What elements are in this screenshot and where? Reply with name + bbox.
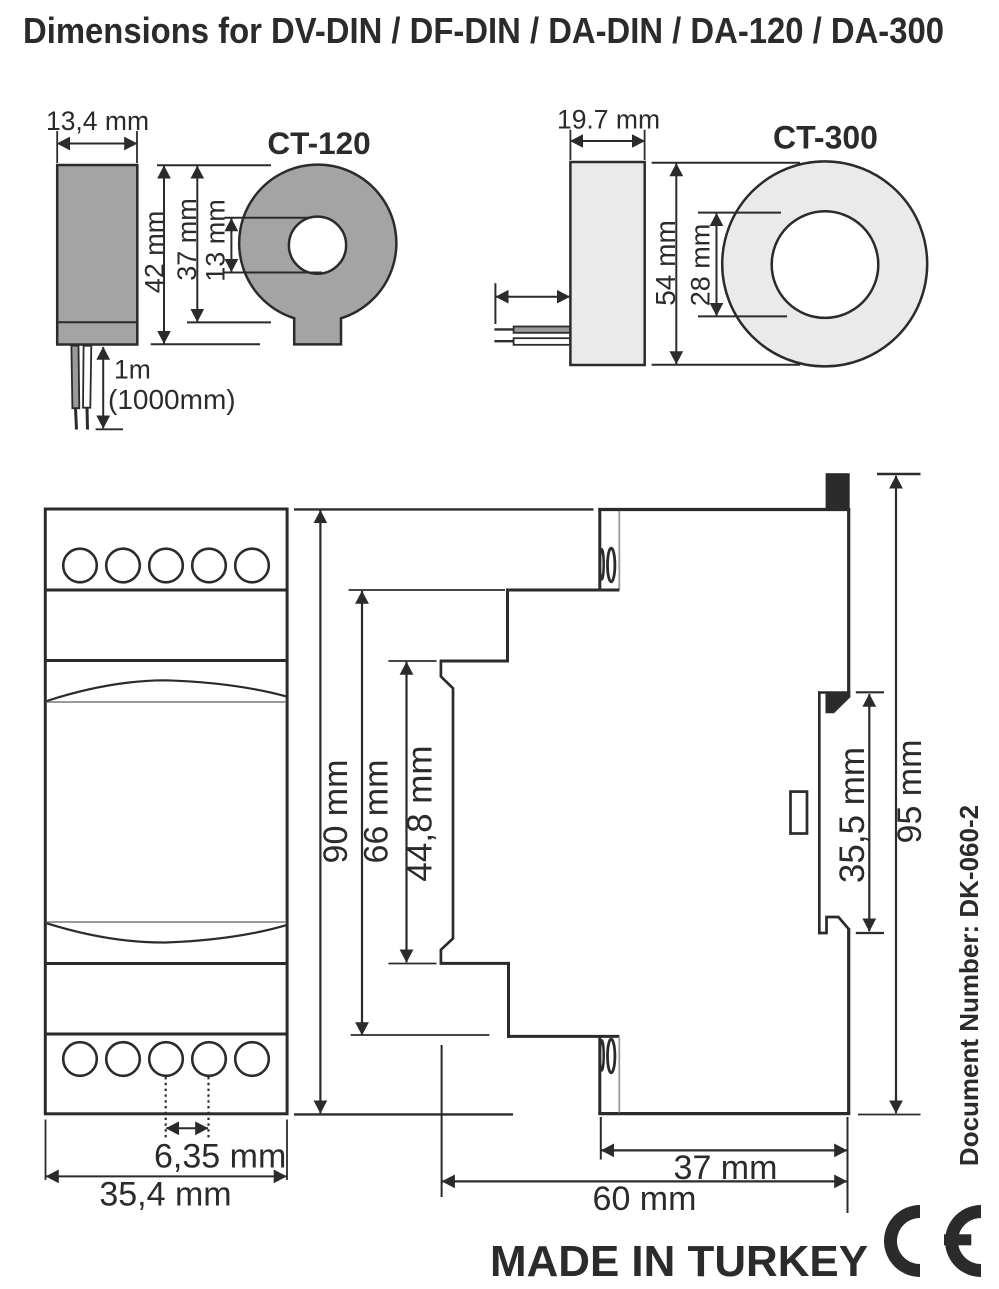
svg-text:60 mm: 60 mm bbox=[593, 1180, 697, 1218]
svg-text:95 mm: 95 mm bbox=[891, 740, 929, 844]
svg-text:1m: 1m bbox=[114, 355, 151, 385]
svg-text:66 mm: 66 mm bbox=[358, 760, 396, 864]
svg-text:13,4 mm: 13,4 mm bbox=[46, 106, 149, 136]
svg-text:54 mm: 54 mm bbox=[650, 220, 681, 306]
svg-text:Dimensions for DV-DIN / DF-DIN: Dimensions for DV-DIN / DF-DIN / DA-DIN … bbox=[23, 10, 944, 51]
svg-text:Document Number: DK-060-2: Document Number: DK-060-2 bbox=[954, 805, 984, 1166]
svg-text:(1000mm): (1000mm) bbox=[108, 384, 236, 415]
svg-text:13 mm: 13 mm bbox=[201, 199, 231, 282]
svg-text:37 mm: 37 mm bbox=[172, 198, 202, 281]
svg-text:28 mm: 28 mm bbox=[686, 224, 716, 307]
svg-text:CT-300: CT-300 bbox=[773, 120, 878, 156]
svg-text:44,8 mm: 44,8 mm bbox=[401, 745, 440, 881]
svg-text:90 mm: 90 mm bbox=[317, 760, 355, 864]
svg-text:35,4 mm: 35,4 mm bbox=[99, 1176, 231, 1214]
svg-text:35,5 mm: 35,5 mm bbox=[833, 747, 872, 883]
svg-text:6,35 mm: 6,35 mm bbox=[154, 1138, 286, 1176]
svg-text:MADE IN TURKEY: MADE IN TURKEY bbox=[490, 1237, 868, 1286]
svg-text:CT-120: CT-120 bbox=[267, 125, 370, 161]
svg-text:42 mm: 42 mm bbox=[140, 211, 170, 294]
